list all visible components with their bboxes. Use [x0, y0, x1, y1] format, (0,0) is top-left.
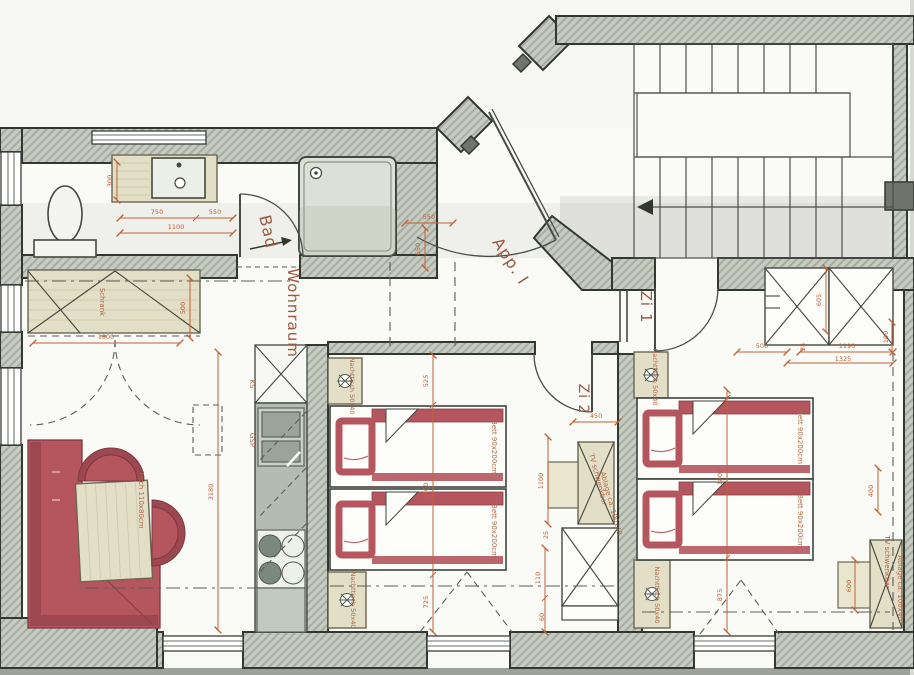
dimension-label: 550 [209, 208, 221, 216]
dimension-label: 750 [151, 208, 163, 216]
window [1, 152, 21, 205]
shower [299, 157, 396, 256]
dimension-label: 1100 [537, 473, 545, 490]
window [427, 636, 510, 651]
furniture-label: Bett 90x200cm [490, 504, 498, 558]
furniture-label: Tisch 110x80cm [137, 470, 145, 528]
dimension-label: 1325 [835, 355, 852, 363]
desk-chair [548, 462, 578, 508]
dimension-label: 500 [179, 302, 187, 314]
dimension-label: 25 [542, 531, 550, 539]
dimension-label: 875 [716, 589, 724, 601]
drain [175, 178, 185, 188]
window [163, 636, 243, 651]
dimension-label: 525 [422, 375, 430, 387]
wardrobe [562, 528, 618, 620]
dimension-label: 1800 [422, 483, 430, 500]
dimension-label: 650 [414, 243, 422, 255]
furniture-label: TV schwenkbar [883, 534, 891, 588]
dimension-label: 1100 [168, 223, 185, 231]
furniture-label: GSP [248, 433, 256, 447]
furniture-label: Nachttisch 50x40 [653, 567, 661, 624]
floor-plan-page: BadWohnraumApp. IZi 1Zi 2 SchrankTisch 1… [0, 0, 914, 675]
dimension-label: 1190 [839, 342, 856, 350]
dimension-label: 3180 [207, 484, 215, 501]
floor-plan-svg: BadWohnraumApp. IZi 1Zi 2 SchrankTisch 1… [0, 0, 914, 675]
desk-chair [838, 562, 870, 608]
dimension-label: 500 [756, 342, 768, 350]
window [1, 285, 21, 332]
furniture-label: Schrank [98, 288, 106, 317]
kitchen [255, 345, 307, 632]
window [694, 636, 775, 651]
dimension-label: 110 [534, 572, 542, 584]
toilet-cistern [34, 240, 96, 257]
furniture-label: Nachttisch 50x40 [349, 572, 357, 629]
furniture-label: KS [248, 379, 256, 389]
furniture-label: Bett 90x200cm [490, 420, 498, 474]
dimension-label: 300 [106, 175, 114, 187]
furniture-label: Ablage ca. 100x40 [896, 555, 904, 620]
dimension-label: 60 [538, 613, 546, 621]
wardrobe-schrank [28, 270, 200, 333]
furniture-label: Bett 90x200cm [796, 410, 804, 464]
wall-pier [885, 182, 914, 210]
room-label: Wohnraum [284, 268, 302, 358]
dimension-label: 550 [423, 213, 435, 221]
dimension-label: 605 [815, 294, 823, 306]
dimension-label: 1800 [716, 469, 724, 486]
dimension-label: 400 [867, 485, 875, 497]
furniture-label: Bett 90x200cm [796, 494, 804, 548]
dimension-label: 25 [799, 343, 807, 351]
window [1, 368, 21, 445]
dimension-label: 1800 [98, 333, 115, 341]
faucet [177, 163, 182, 168]
window [92, 131, 206, 144]
sink-vanity [112, 155, 217, 202]
dimension-label: 725 [422, 596, 430, 608]
dimension-label: 450 [590, 412, 602, 420]
toilet [48, 186, 82, 242]
dimension-label: 100 [882, 331, 890, 343]
furniture-label: Nachttisch 50x40 [651, 349, 659, 406]
dimension-label: 600 [845, 580, 853, 592]
furniture-label: Nachttisch 50x40 [348, 358, 356, 415]
room-label: Zi 2 [575, 384, 591, 415]
room-label: Zi 1 [637, 291, 655, 324]
